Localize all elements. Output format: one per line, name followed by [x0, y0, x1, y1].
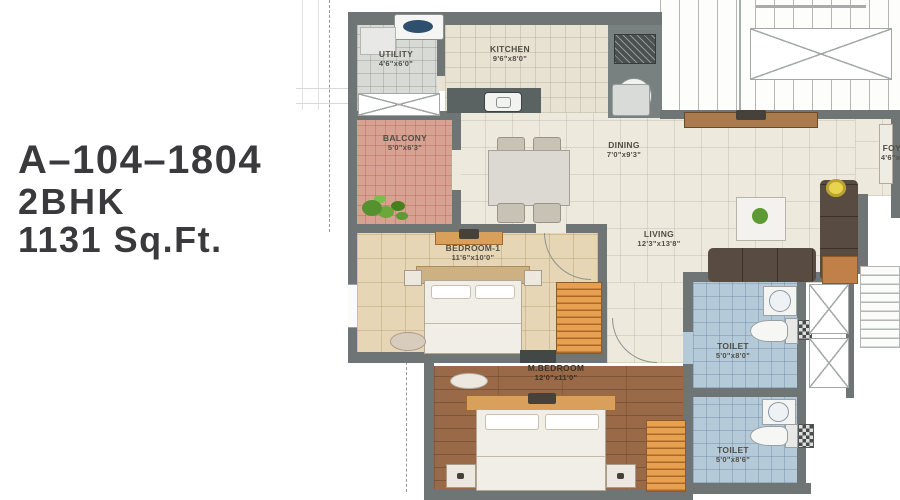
room-label-utility: UTILITY 4'6"x6'0"	[352, 50, 440, 68]
wardrobe-icon	[556, 282, 602, 354]
utility-sink-icon	[394, 14, 444, 40]
washbasin-icon	[762, 399, 796, 425]
bed-icon	[424, 280, 522, 354]
tv-plant	[752, 208, 768, 224]
dining-chair-icon	[533, 203, 561, 223]
floor-plan-page: A–104–1804 2BHK 1131 Sq.Ft.	[0, 0, 900, 500]
washbasin-icon	[763, 286, 797, 316]
bed-icon	[476, 409, 606, 491]
nightstand-icon	[446, 464, 476, 488]
boundary-tick	[296, 88, 350, 89]
washbasin-bowl	[769, 290, 791, 312]
side-table-icon	[822, 256, 858, 284]
stool-icon	[450, 373, 488, 389]
room-label-bedroom1: BEDROOM-1 11'6"x10'0"	[408, 244, 538, 262]
room-label-foyer: FOYER 4'6"x5'0"	[848, 144, 900, 162]
room-label-balcony: BALCONY 5'0"x6'3"	[357, 134, 453, 152]
room-dims: 5'0"x8'0"	[694, 352, 772, 361]
unit-area: 1131 Sq.Ft.	[18, 219, 223, 261]
washbasin-bowl	[768, 402, 789, 422]
headboard-decor	[459, 229, 479, 239]
blanket-fold	[425, 323, 521, 324]
nightstand-icon	[606, 464, 636, 488]
room-dims: 5'0"x8'6"	[694, 456, 772, 465]
stair-top-rail	[756, 5, 866, 8]
sofa-icon	[708, 248, 816, 282]
lamp	[617, 473, 624, 479]
pillow-icon	[431, 285, 471, 299]
nightstand-icon	[404, 270, 422, 286]
room-dims: 4'6"x5'0"	[848, 154, 900, 163]
lamp	[457, 473, 464, 479]
window	[348, 284, 357, 328]
rug-icon	[390, 332, 426, 351]
unit-code: A–104–1804	[18, 138, 262, 183]
toilet-wc-icon	[750, 426, 788, 446]
wall	[683, 483, 811, 494]
room-dims: 9'6"x8'0"	[450, 55, 570, 64]
nightstand-icon	[524, 270, 542, 286]
wardrobe-icon	[646, 420, 686, 492]
toilet-wc-icon	[750, 320, 788, 342]
wall	[683, 388, 805, 397]
tv-unit-icon	[736, 197, 786, 241]
unit-type: 2BHK	[18, 181, 126, 223]
boundary-dashed-line	[329, 0, 330, 232]
room-dims: 5'0"x6'3"	[357, 144, 453, 153]
room-dims: 7'0"x9'3"	[584, 151, 664, 160]
kitchen-sink-icon	[484, 92, 522, 112]
pillow-icon	[545, 414, 599, 430]
wall	[797, 272, 806, 493]
utility-window	[358, 93, 440, 116]
dining-table-icon	[488, 150, 570, 206]
dining-chair-icon	[497, 203, 525, 223]
room-dims: 12'3"x13'8"	[600, 240, 718, 249]
kitchen-sink-bowl	[496, 97, 511, 108]
boundary-line	[318, 0, 319, 110]
boundary-dashed-line	[406, 362, 407, 492]
service-stair	[860, 266, 900, 348]
wall	[858, 194, 868, 274]
room-label-dining: DINING 7'0"x9'3"	[584, 141, 664, 159]
wall	[348, 12, 357, 233]
room-label-master-bedroom: M.BEDROOM 12'0"x11'0"	[496, 364, 616, 382]
door-gap	[437, 76, 445, 91]
hob-icon	[614, 34, 656, 64]
room-label-toilet2: TOILET 5'0"x8'6"	[694, 446, 772, 464]
boundary-tick	[296, 103, 350, 104]
room-dims: 11'6"x10'0"	[408, 254, 538, 263]
flower-pot-icon	[826, 179, 846, 197]
boundary-line	[302, 0, 303, 110]
room-dims: 12'0"x11'0"	[496, 374, 616, 383]
console-decor	[736, 110, 766, 120]
utility-sink-basin	[403, 20, 433, 33]
door-leaf	[520, 350, 556, 363]
room-label-kitchen: KITCHEN 9'6"x8'0"	[450, 45, 570, 63]
door-gap	[683, 332, 693, 364]
duct-shaft	[809, 284, 849, 334]
room-dims: 4'6"x6'0"	[352, 60, 440, 69]
fridge-icon	[612, 84, 650, 116]
wall	[424, 358, 434, 500]
duct-grille	[798, 424, 814, 448]
stair-flight-divider	[739, 0, 741, 110]
door-gap	[452, 150, 461, 190]
pillow-icon	[485, 414, 539, 430]
room-label-living: LIVING 12'3"x13'8"	[600, 230, 718, 248]
plant-icon	[362, 200, 382, 216]
door-gap	[536, 224, 566, 233]
blanket-fold	[477, 456, 605, 457]
headboard-decor	[528, 393, 556, 404]
pillow-icon	[475, 285, 515, 299]
duct-shaft	[809, 338, 849, 388]
stair-landing	[750, 28, 892, 80]
room-label-toilet1: TOILET 5'0"x8'0"	[694, 342, 772, 360]
